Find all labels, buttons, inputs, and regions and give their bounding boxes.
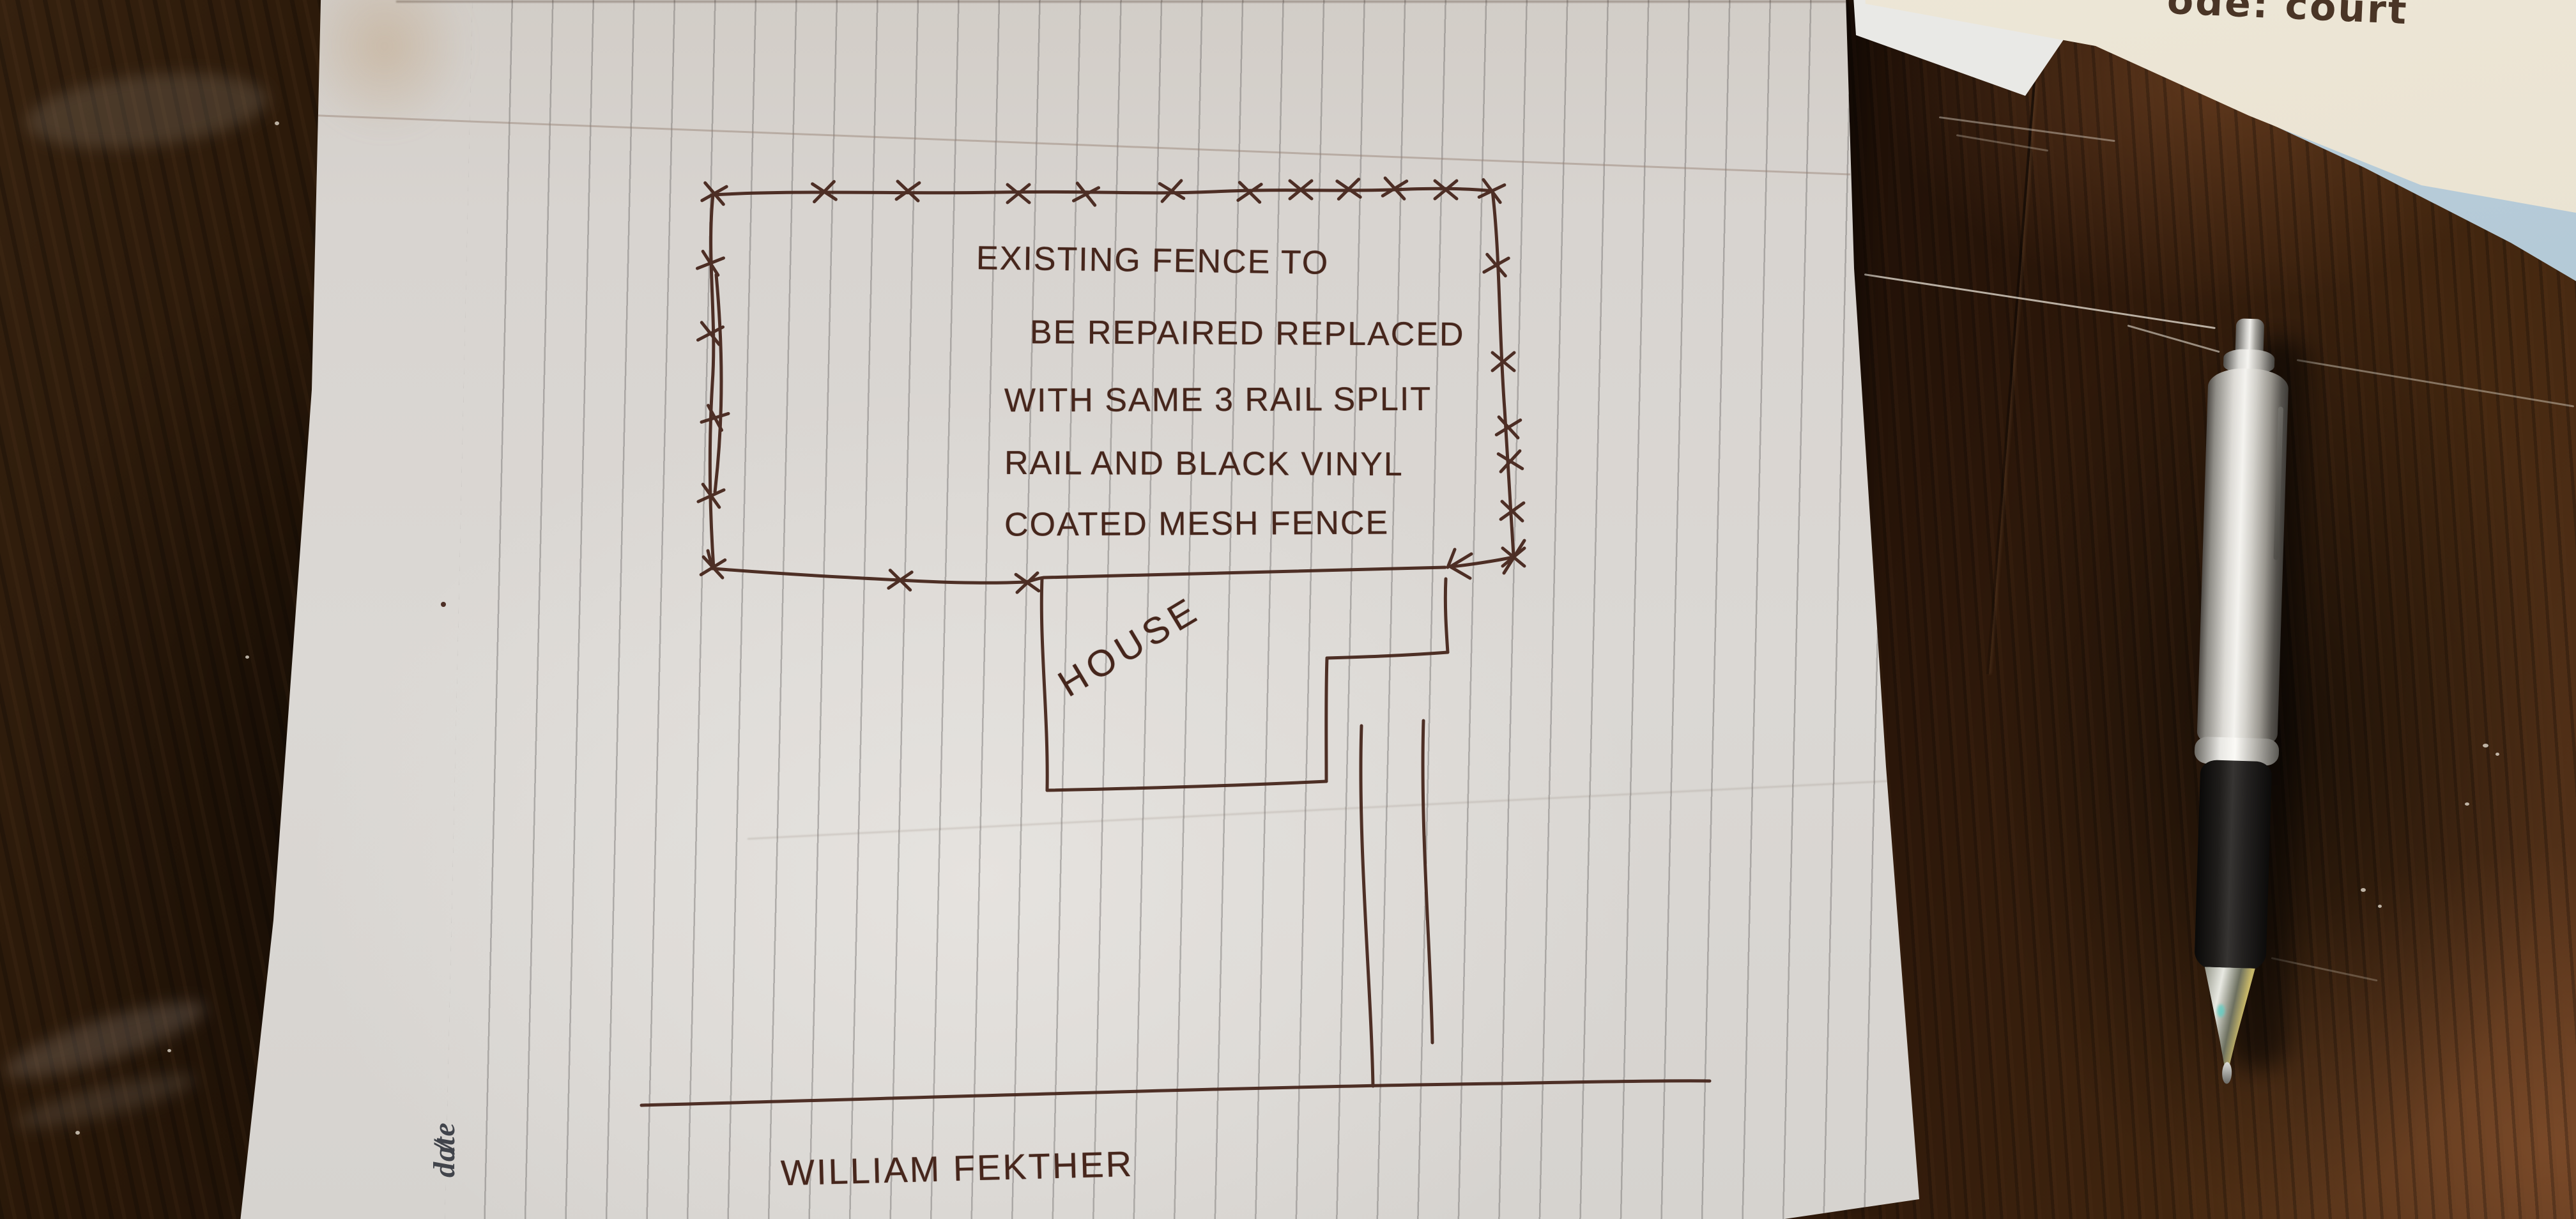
- pen-grip: [2194, 760, 2272, 972]
- corner-paper-text: ode: court: [2166, 0, 2409, 33]
- house-notch-horizontal: [1327, 652, 1448, 658]
- note-line-2: BE REPAIRED REPLACED: [1030, 313, 1465, 354]
- pen-tip-ball: [2222, 1062, 2232, 1084]
- date-slash-2: /: [427, 1140, 462, 1149]
- ground-line: [641, 1081, 1710, 1105]
- house-bottom-edge: [1047, 781, 1326, 790]
- walkway-line-left: [1361, 726, 1373, 1086]
- note-line-3: WITH SAME 3 RAIL SPLIT: [1004, 380, 1432, 420]
- wood-speck: [167, 1049, 171, 1052]
- fence-bottom-edge: [714, 569, 1044, 583]
- wood-speck: [2495, 753, 2499, 756]
- house-right-edge: [1445, 579, 1448, 652]
- wood-speck: [75, 1131, 80, 1135]
- fence-left-edge-double: [715, 275, 721, 492]
- wood-speck: [245, 655, 249, 659]
- house-top-edge: [1044, 567, 1445, 578]
- wood-speck: [2361, 888, 2366, 892]
- ink-dot: [441, 602, 446, 607]
- wood-speck: [2483, 744, 2488, 747]
- wood-speck: [275, 121, 279, 125]
- fence-left-edge: [710, 195, 714, 569]
- house-notch-vertical: [1326, 658, 1327, 781]
- pen-clicker-button: [2235, 318, 2265, 353]
- note-line-4: RAIL AND BLACK VINYL: [1004, 444, 1404, 484]
- note-line-5: COATED MESH FENCE: [1004, 503, 1390, 544]
- note-line-1: EXISTING FENCE TO: [976, 239, 1330, 282]
- wood-speck: [2378, 905, 2382, 908]
- wood-speck: [2465, 802, 2469, 806]
- house-left-edge: [1041, 578, 1047, 790]
- photo-scene: EXISTING FENCE TO BE REPAIRED REPLACED W…: [0, 0, 2576, 1219]
- walkway-line-right: [1423, 721, 1432, 1043]
